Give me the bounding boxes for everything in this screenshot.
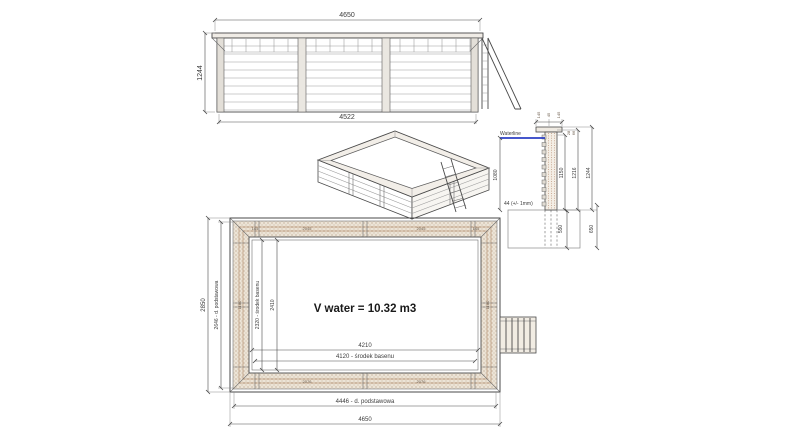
- elevation-dim-left: 1244: [197, 33, 215, 112]
- elevation-dim-bottom-label: 4522: [339, 114, 355, 121]
- dim-height-planks-label: 1216: [572, 167, 578, 178]
- elevation-ladder: [482, 38, 521, 109]
- seg-right-label: 1180: [485, 300, 490, 309]
- dim-depth-label: 1080: [493, 169, 499, 180]
- dim-outer-length-label: 4650: [358, 417, 372, 423]
- isometric-drawing: [303, 126, 508, 221]
- dim-cap-right-label: 145: [556, 111, 561, 118]
- elevation-dim-top-label: 4650: [339, 12, 355, 19]
- seg-top-right-label: 2045: [417, 226, 427, 231]
- dim-foundation-inner-label: 550: [558, 225, 564, 234]
- dim-wall-thickness-label: 44 (+/- 1mm): [504, 201, 533, 207]
- corner-post-right-label: 145: [473, 226, 480, 231]
- dim-base-length-label: 4446 - d. podstawowa: [336, 399, 395, 405]
- section-dim-depth: 1080: [493, 138, 500, 210]
- seg-left-label: 1180: [237, 300, 242, 309]
- elevation-drawing: 4650: [195, 5, 525, 130]
- corner-post-left-label: 145: [252, 226, 259, 231]
- section-dim-heights: 1150 1216 1244: [557, 127, 597, 210]
- waterline-label: Waterline: [500, 131, 521, 137]
- seg-bottom-right-label: 2076: [417, 379, 427, 384]
- plan-dim-interior-width: 2320 - środek basenu 2410: [255, 240, 277, 370]
- elevation-dim-left-label: 1244: [197, 65, 204, 81]
- plan-drawing: 2045 2045 2076 2076 1180 1180 145 145 23…: [195, 210, 545, 446]
- plan-dim-interior-length: 4210 4120 - środek basenu: [252, 343, 478, 361]
- elevation-view: 4650: [195, 5, 525, 130]
- dim-base-width-label: 2646 - d. podstawowa: [214, 280, 220, 329]
- dim-cap-mid-label: 45: [546, 112, 551, 117]
- dim-cap-left-label: 145: [536, 111, 541, 118]
- dim-inner-width-label: 2410: [270, 299, 276, 310]
- dim-small-b-label: 66: [571, 130, 576, 135]
- dim-center-length-label: 4120 - środek basenu: [336, 354, 394, 360]
- dim-center-width-label: 2320 - środek basenu: [255, 281, 261, 330]
- elevation-dim-top: 4650: [215, 12, 480, 31]
- plan-dim-left: 2850 2646 - d. podstawowa: [201, 218, 233, 392]
- seg-top-left-label: 2045: [303, 226, 313, 231]
- plan-ladder: [500, 317, 536, 353]
- dim-outer-width-label: 2850: [201, 298, 207, 312]
- dim-foundation-outer-label: 650: [589, 225, 595, 234]
- plan-dim-bottom: 4446 - d. podstawowa 4650: [230, 392, 500, 427]
- seg-bottom-left-label: 2076: [303, 379, 313, 384]
- plan-view: 2045 2045 2076 2076 1180 1180 145 145 23…: [195, 210, 545, 446]
- elevation-dim-bottom: 4522: [219, 114, 476, 124]
- section-dim-cap: 145 45 145: [536, 111, 562, 126]
- dim-height-total-label: 1244: [586, 167, 592, 178]
- dim-inner-length-label: 4210: [358, 343, 372, 349]
- volume-label: V water = 10.32 m3: [314, 303, 417, 315]
- technical-drawing-canvas: 4650: [0, 0, 794, 446]
- isometric-view: [303, 126, 508, 221]
- dim-height-inner-label: 1150: [559, 167, 565, 178]
- elevation-pool-body: [212, 33, 483, 112]
